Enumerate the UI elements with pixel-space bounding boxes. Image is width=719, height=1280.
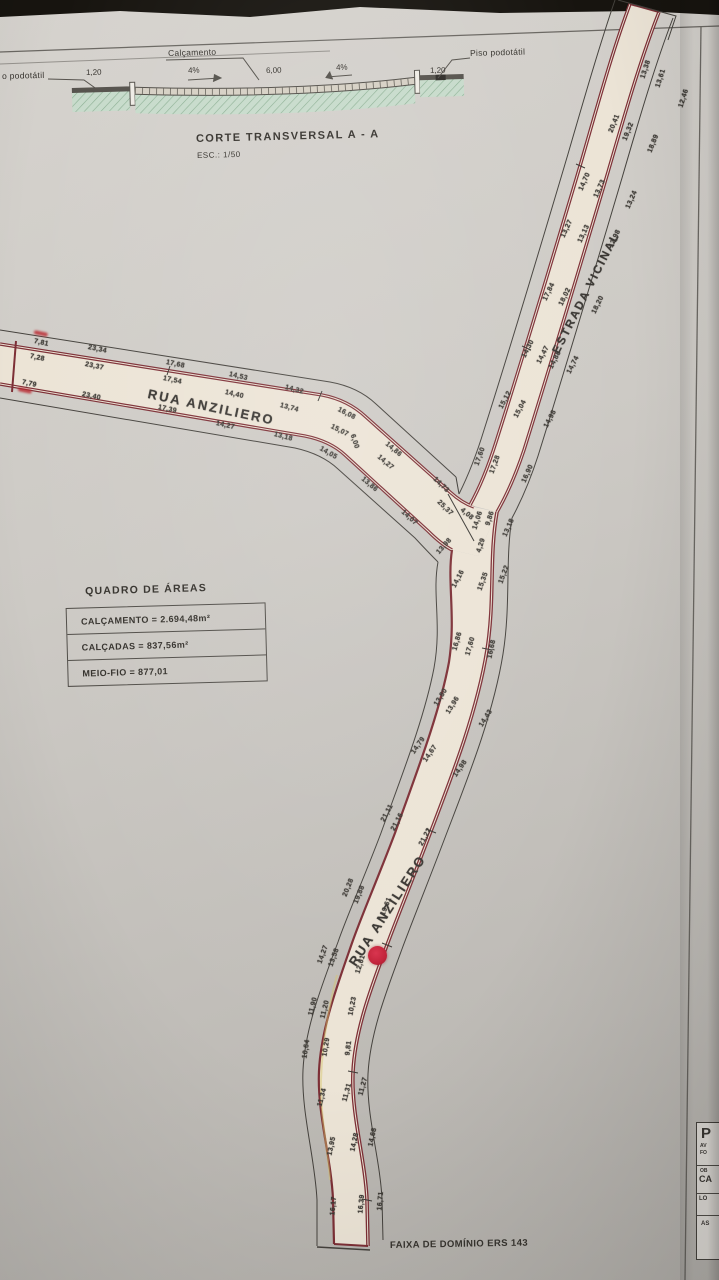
title-block-fragment: LO (699, 1196, 707, 1202)
title-block-divider (697, 1215, 719, 1216)
title-block: P AV FO OB CA LO AS (696, 1122, 719, 1260)
sidewalk-left-width: 1,20 (86, 68, 102, 77)
slope-left-label: 4% (188, 66, 200, 75)
photographed-plan-sheet: o podotátil 1,20 Calçamento 4% 6,00 4% 1… (0, 0, 719, 1280)
piso-podotatil-left-label: o podotátil (2, 70, 45, 81)
title-block-fragment: AV (700, 1143, 707, 1149)
title-block-divider (697, 1193, 719, 1194)
survey-point-marker (368, 946, 387, 965)
areas-table-box: CALÇAMENTO = 2.694,48m² CALÇADAS = 837,5… (66, 602, 268, 687)
calcamento-label: Calçamento (168, 47, 217, 58)
title-block-fragment: P (701, 1125, 711, 1142)
areas-table: QUADRO DE ÁREAS CALÇAMENTO = 2.694,48m² … (65, 580, 268, 687)
sidewalk-right-width: 1,20 (430, 66, 446, 75)
station-ticks (167, 164, 585, 1201)
slope-right-label: 4% (336, 63, 348, 72)
west-road (0, 330, 497, 562)
title-block-fragment: CA (699, 1174, 712, 1184)
road-width-label: 6,00 (266, 66, 282, 75)
cross-section-scale: ESC.: 1/50 (197, 150, 241, 160)
title-block-fragment: AS (701, 1221, 709, 1227)
areas-row-meiofio: MEIO-FIO = 877,01 (68, 655, 267, 686)
title-block-fragment: FO (700, 1150, 707, 1156)
title-block-divider (697, 1165, 719, 1166)
cross-section-drawing (72, 69, 465, 119)
piso-podotatil-right-label: Piso podotátil (470, 47, 525, 58)
